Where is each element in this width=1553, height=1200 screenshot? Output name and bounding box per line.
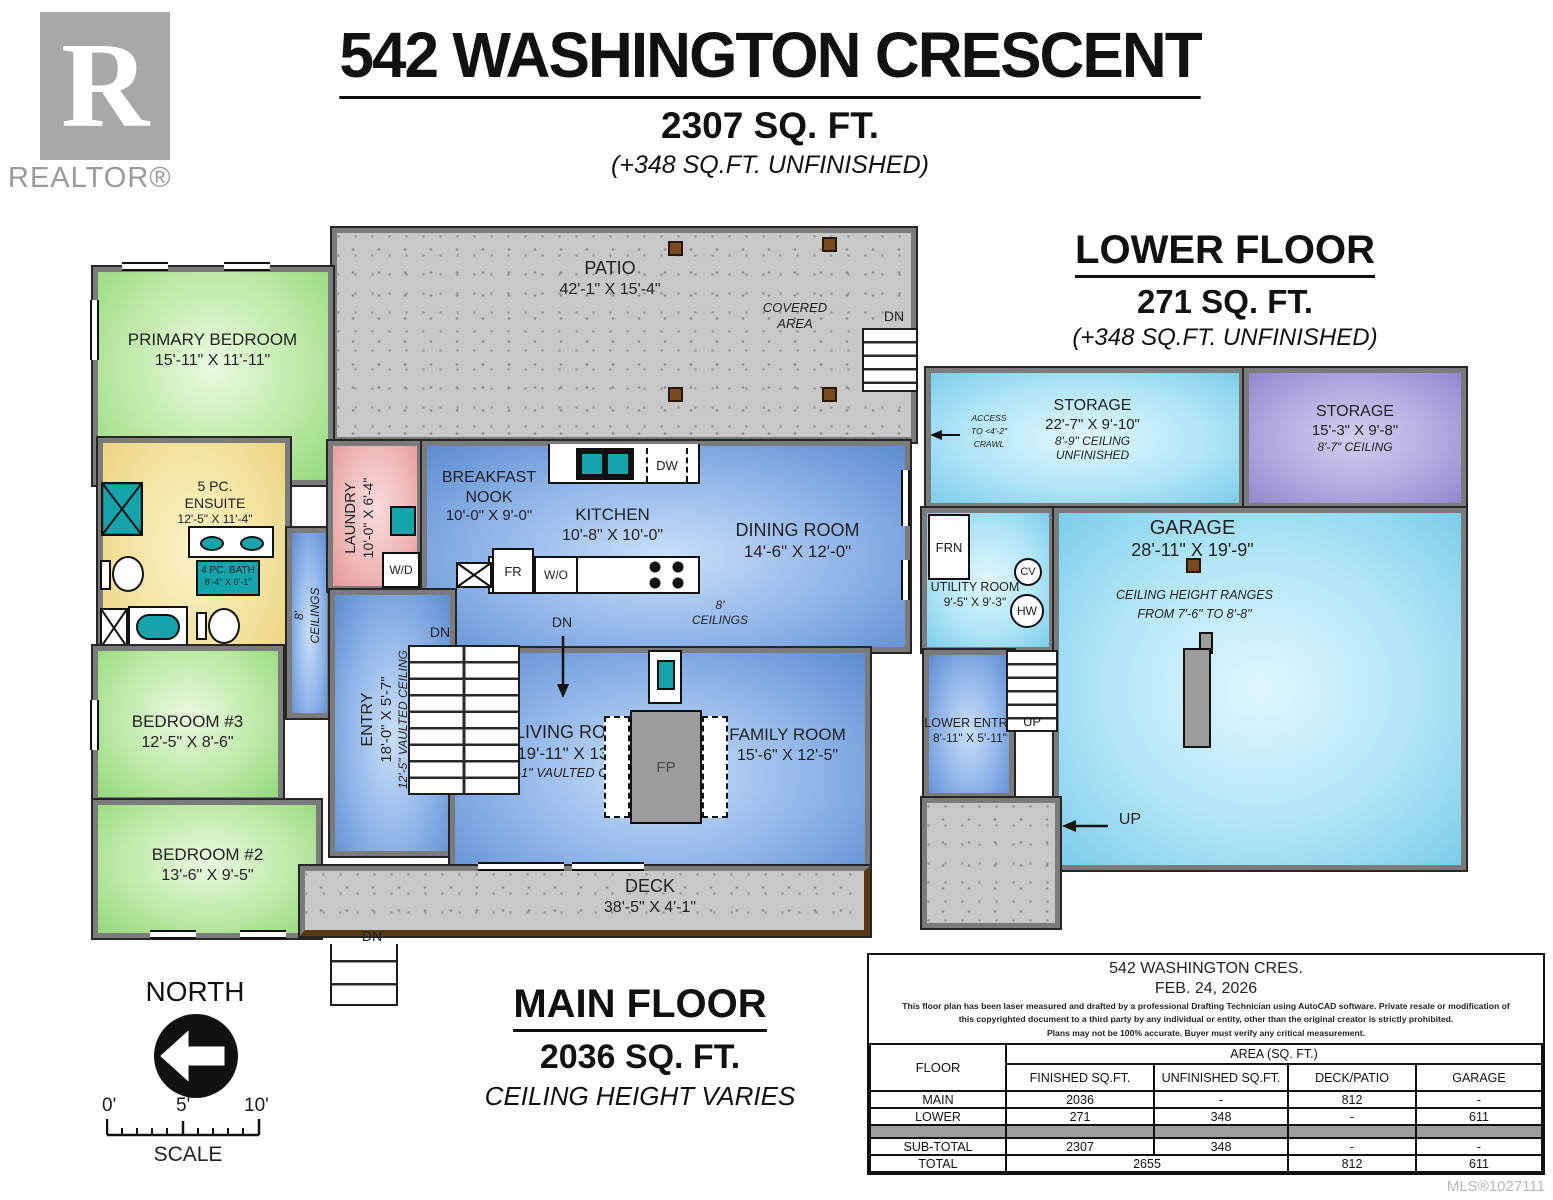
room-label-primary-bedroom: PRIMARY BEDROOM 15'-11" X 11'-11" — [110, 330, 315, 370]
window — [240, 930, 286, 939]
window — [90, 700, 99, 750]
col-header-unfinished: UNFINISHED SQ.FT. — [1154, 1064, 1288, 1091]
mls-number: MLS®1027111 — [1330, 1178, 1545, 1195]
bar-sink-alcove — [648, 650, 682, 704]
window — [90, 300, 99, 360]
window — [901, 470, 910, 526]
toilet-bowl — [208, 608, 240, 644]
wall-oven-label: W/O — [544, 568, 568, 582]
hot-water-tank: HW — [1010, 594, 1044, 628]
window — [478, 862, 564, 871]
window — [901, 560, 910, 600]
wall-oven: W/O — [534, 556, 578, 594]
table-row-spacer — [870, 1125, 1542, 1138]
garage-ceiling-note: CEILING HEIGHT RANGES FROM 7'-6" TO 8'-8… — [1092, 586, 1297, 624]
patio-dn-label: DN — [874, 308, 914, 325]
unfinished-note: (+348 SQ.FT. UNFINISHED) — [280, 151, 1260, 180]
scale-label: SCALE — [106, 1142, 270, 1168]
tub-basin — [136, 614, 180, 640]
info-table-title: 542 WASHINGTON CRES. — [869, 959, 1543, 979]
info-table-date: FEB. 24, 2026 — [869, 979, 1543, 999]
patio-dn-stairs — [862, 328, 918, 392]
bar-sink — [657, 660, 675, 690]
dishwasher-label: DW — [656, 458, 678, 473]
stairs-dn-label: DN — [420, 624, 460, 641]
stove-burners — [640, 558, 694, 592]
fireplace-label: FP — [656, 759, 675, 776]
patio-post — [822, 237, 837, 252]
window — [150, 930, 196, 939]
deck-dn-stairs — [330, 944, 398, 1006]
table-row-main: MAIN 2036 - 812 - — [870, 1091, 1542, 1108]
shower-icon — [101, 482, 143, 536]
main-stairs — [408, 645, 520, 795]
washer-dryer-label: W/D — [389, 563, 412, 577]
page-title: 542 WASHINGTON CRESCENT — [339, 18, 1200, 99]
crosshatch-icon — [456, 562, 492, 588]
scale-tick-0: 0' — [102, 1095, 116, 1117]
room-label-bedroom3: BEDROOM #3 12'-5" X 8'-6" — [100, 712, 275, 752]
realtor-logo: R — [40, 12, 170, 160]
sink-basin — [240, 536, 264, 551]
central-vac: CV — [1014, 558, 1042, 586]
patio-post — [668, 241, 683, 256]
lower-floor-header: LOWER FLOOR 271 SQ. FT. (+348 SQ.FT. UNF… — [1000, 228, 1450, 352]
col-header-deck-patio: DECK/PATIO — [1288, 1064, 1416, 1091]
area-header: AREA (SQ. FT.) — [1006, 1044, 1542, 1064]
room-label-bedroom2: BEDROOM #2 13'-6" X 9'-5" — [115, 845, 300, 885]
main-floor-title: MAIN FLOOR — [513, 982, 766, 1032]
crawl-access-note: ACCESS TO <4'-2" CRAWL — [958, 412, 1020, 450]
area-grid: FLOOR AREA (SQ. FT.) FINISHED SQ.FT. UNF… — [869, 1043, 1543, 1173]
room-label-kitchen: KITCHEN 10'-8" X 10'-0" — [545, 505, 680, 545]
room-label-deck: DECK 38'-5" X 4'-1" — [560, 876, 740, 917]
realtor-logo-letter: R — [61, 16, 149, 156]
scale-tick-10: 10' — [244, 1095, 269, 1117]
lower-concrete-pad — [922, 798, 1060, 928]
lower-floor-title: LOWER FLOOR — [1075, 228, 1375, 278]
fridge-label: FR — [504, 564, 521, 579]
room-label-storage2: STORAGE 15'-3" X 9'-8" 8'-7" CEILING — [1280, 402, 1430, 454]
window — [572, 862, 644, 871]
fireplace: FP — [630, 710, 702, 824]
col-header-finished: FINISHED SQ.FT. — [1006, 1064, 1154, 1091]
room-label-lower-entry: LOWER ENTRY 8'-11" X 5'-11" — [922, 716, 1018, 746]
table-row-subtotal: SUB-TOTAL 2307 348 - - — [870, 1138, 1542, 1155]
info-table-disclaimer: This floor plan has been laser measured … — [869, 1000, 1543, 1040]
toilet-bowl — [112, 556, 144, 592]
scale-tick-5: 5' — [176, 1095, 190, 1117]
fridge: FR — [492, 548, 534, 594]
window — [122, 262, 168, 271]
washer-dryer: W/D — [382, 552, 420, 588]
bathtub — [128, 606, 188, 648]
fireplace-hearth — [604, 716, 630, 818]
kitchen-sink-basin — [580, 452, 604, 476]
shower — [101, 482, 143, 536]
garage-pillar — [1183, 648, 1211, 748]
main-floor-header: MAIN FLOOR 2036 SQ. FT. CEILING HEIGHT V… — [460, 982, 820, 1112]
deck-dn-label: DN — [352, 928, 392, 945]
bath-badge: 4 PC. BATH 8'-4" X 6'-1" — [196, 560, 260, 596]
central-vac-label: CV — [1020, 566, 1035, 578]
vanity-double-sink — [188, 526, 274, 558]
window — [224, 262, 270, 271]
room-label-breakfast-nook: BREAKFAST NOOK 10'-0" X 9'-0" — [424, 468, 554, 525]
toilet — [196, 612, 207, 640]
total-area: 2307 SQ. FT. — [280, 105, 1260, 147]
lower-stairs-up-label: UP — [1014, 714, 1050, 730]
floor-plan-page: R REALTOR® 542 WASHINGTON CRESCENT 2307 … — [0, 0, 1553, 1200]
lower-floor-area: 271 SQ. FT. — [1000, 283, 1450, 321]
north-arrow-icon — [150, 1010, 242, 1107]
crosshatch-cabinet — [100, 608, 128, 648]
col-header-floor: FLOOR — [870, 1044, 1006, 1091]
room-label-patio: PATIO 42'-1" X 15'-4" — [500, 258, 720, 299]
crawl-arrow-icon — [930, 428, 960, 446]
main-floor-area: 2036 SQ. FT. — [460, 1038, 820, 1077]
sink-basin — [200, 536, 224, 551]
patio-post — [668, 387, 683, 402]
room-label-garage: GARAGE 28'-11" X 19'-9" — [1100, 516, 1285, 562]
counter-crosshatch — [456, 562, 492, 588]
up-arrow-icon — [1062, 818, 1108, 839]
laundry-sink — [390, 506, 416, 536]
room-label-laundry: LAUNDRY 10'-0" X 6'-4" — [342, 456, 382, 580]
fireplace-hearth — [702, 716, 728, 818]
room-label-storage1: STORAGE 22'-7" X 9'-10" 8'-9" CEILING UN… — [1010, 396, 1175, 463]
realtor-logo-text: REALTOR® — [8, 162, 198, 195]
main-floor-note: CEILING HEIGHT VARIES — [460, 1081, 820, 1112]
table-row-total: TOTAL 2655 812 611 — [870, 1155, 1542, 1172]
room-label-dining: DINING ROOM 14'-6" X 12'-0" — [700, 520, 895, 563]
hot-water-label: HW — [1017, 604, 1037, 618]
dining-ceiling-note: 8' CEILINGS — [688, 598, 752, 627]
table-row-lower: LOWER 271 348 - 611 — [870, 1108, 1542, 1125]
dn-arrow-icon — [556, 636, 570, 703]
furnace-label: FRN — [936, 540, 963, 555]
room-label-ensuite: 5 PC. ENSUITE 12'-5" X 11'-4" — [150, 478, 280, 527]
exterior-up-label: UP — [1110, 810, 1150, 830]
hall-dn-label: DN — [542, 614, 582, 631]
furnace: FRN — [928, 514, 970, 580]
info-table: 542 WASHINGTON CRES. FEB. 24, 2026 This … — [867, 953, 1545, 1175]
hall-ceiling-note: 8' CEILINGS — [292, 563, 326, 668]
garage-post — [1186, 558, 1201, 573]
north-label: NORTH — [136, 975, 254, 1009]
col-header-garage: GARAGE — [1416, 1064, 1542, 1091]
covered-area-note: COVERED AREA — [740, 300, 850, 332]
header-block: 542 WASHINGTON CRESCENT 2307 SQ. FT. (+3… — [280, 18, 1260, 180]
toilet — [100, 560, 111, 590]
room-label-family: FAMILY ROOM 15'-6" X 12'-5" — [705, 725, 870, 765]
patio-post — [822, 387, 837, 402]
kitchen-sink-basin — [606, 452, 630, 476]
lower-floor-unfinished: (+348 SQ.FT. UNFINISHED) — [1000, 324, 1450, 352]
scale-ruler-icon — [106, 1117, 270, 1137]
crosshatch-icon — [100, 608, 128, 648]
scale-bar: 0' 5' 10' SCALE — [100, 1095, 275, 1168]
room-label-utility: UTILITY ROOM 9'-5" X 9'-3" — [926, 580, 1024, 610]
dishwasher: DW — [646, 448, 688, 482]
